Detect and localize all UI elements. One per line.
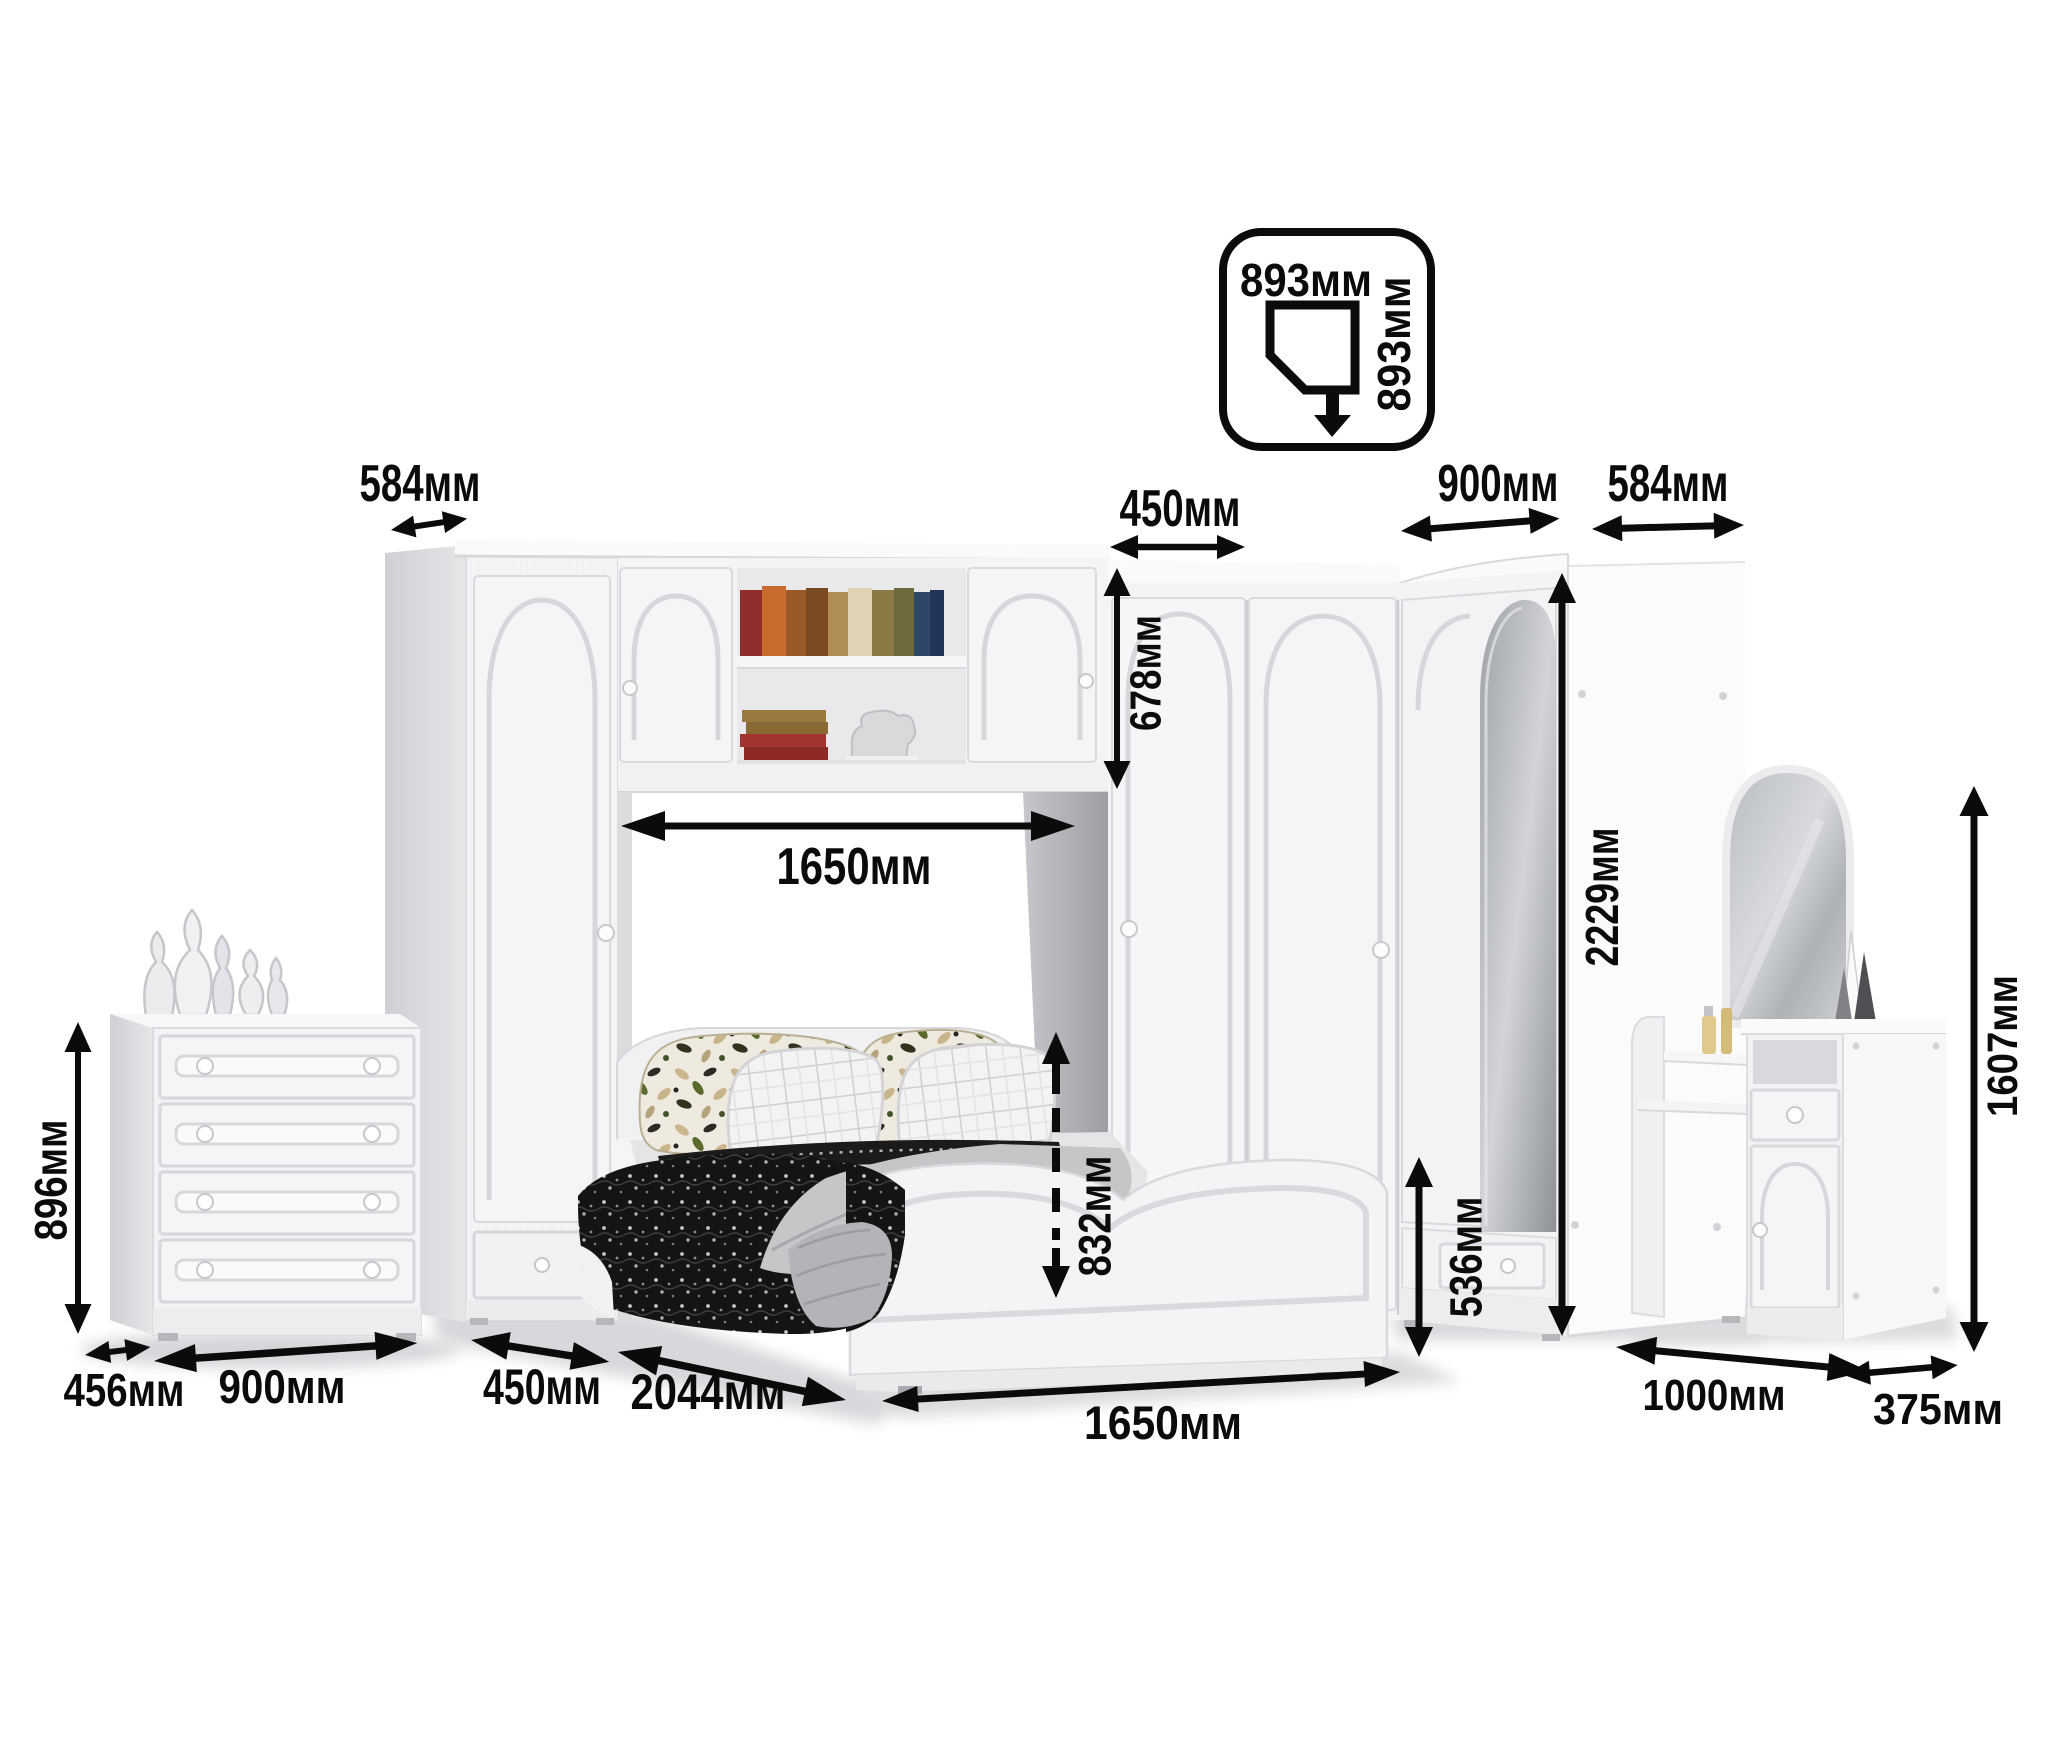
- svg-text:832мм: 832мм: [1070, 1156, 1121, 1277]
- svg-text:584мм: 584мм: [1608, 455, 1729, 513]
- svg-text:1000мм: 1000мм: [1643, 1371, 1786, 1420]
- svg-text:450мм: 450мм: [483, 1359, 601, 1415]
- svg-text:900мм: 900мм: [1438, 455, 1559, 513]
- svg-text:2229мм: 2229мм: [1576, 828, 1628, 967]
- svg-text:893мм: 893мм: [1240, 254, 1372, 306]
- svg-text:584мм: 584мм: [360, 455, 481, 513]
- svg-text:1607мм: 1607мм: [1979, 975, 2027, 1117]
- svg-text:456мм: 456мм: [64, 1364, 185, 1416]
- svg-text:375мм: 375мм: [1873, 1385, 2003, 1434]
- svg-text:2044мм: 2044мм: [631, 1364, 786, 1420]
- svg-text:450мм: 450мм: [1120, 480, 1241, 538]
- svg-text:893мм: 893мм: [1368, 277, 1420, 412]
- svg-text:678мм: 678мм: [1122, 615, 1171, 731]
- svg-text:900мм: 900мм: [219, 1360, 346, 1413]
- svg-text:536мм: 536мм: [1441, 1197, 1492, 1318]
- svg-text:896мм: 896мм: [26, 1120, 77, 1241]
- svg-text:1650мм: 1650мм: [777, 838, 932, 896]
- svg-text:1650мм: 1650мм: [1084, 1396, 1242, 1449]
